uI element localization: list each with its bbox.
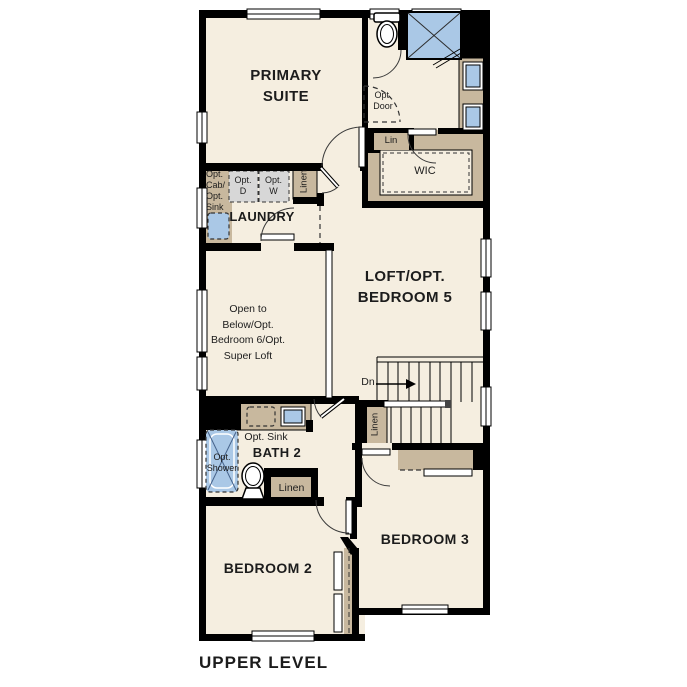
plan-title: UPPER LEVEL	[199, 653, 399, 673]
optional-washer-label: Opt. W	[258, 175, 289, 197]
laundry-label: LAUNDRY	[212, 210, 312, 225]
optional-shower-label: Opt. Shower	[201, 452, 243, 474]
bedroom2-label: BEDROOM 2	[208, 560, 328, 576]
bath2-label: BATH 2	[237, 446, 317, 461]
wic-label: WIC	[395, 165, 455, 178]
optional-dryer-label: Opt. D	[228, 175, 258, 197]
primary-suite-label: PRIMARY SUITE	[216, 65, 356, 107]
laundry-linen-label: Linen	[300, 161, 311, 201]
hall-linen-label: Linen	[371, 404, 382, 444]
bath2-toilet	[242, 463, 264, 499]
primary-shower	[407, 12, 461, 68]
bedroom3-label: BEDROOM 3	[365, 531, 485, 547]
optional-door-label: Opt. Door	[363, 90, 403, 112]
floor-plan: PRIMARY SUITE Opt. Door Lin WIC Opt. Cab…	[0, 0, 687, 687]
bath-linen-label: Linen	[271, 482, 312, 494]
open-to-below-label: Open to Below/Opt. Bedroom 6/Opt. Super …	[196, 302, 300, 364]
loft-railing	[326, 250, 332, 398]
optional-sink-label: Opt. Sink	[230, 431, 302, 443]
linen-cabinet-label: Lin	[372, 136, 410, 147]
loft-bedroom5-label: LOFT/OPT. BEDROOM 5	[345, 266, 465, 308]
stairs-down-label: Dn	[357, 376, 379, 388]
